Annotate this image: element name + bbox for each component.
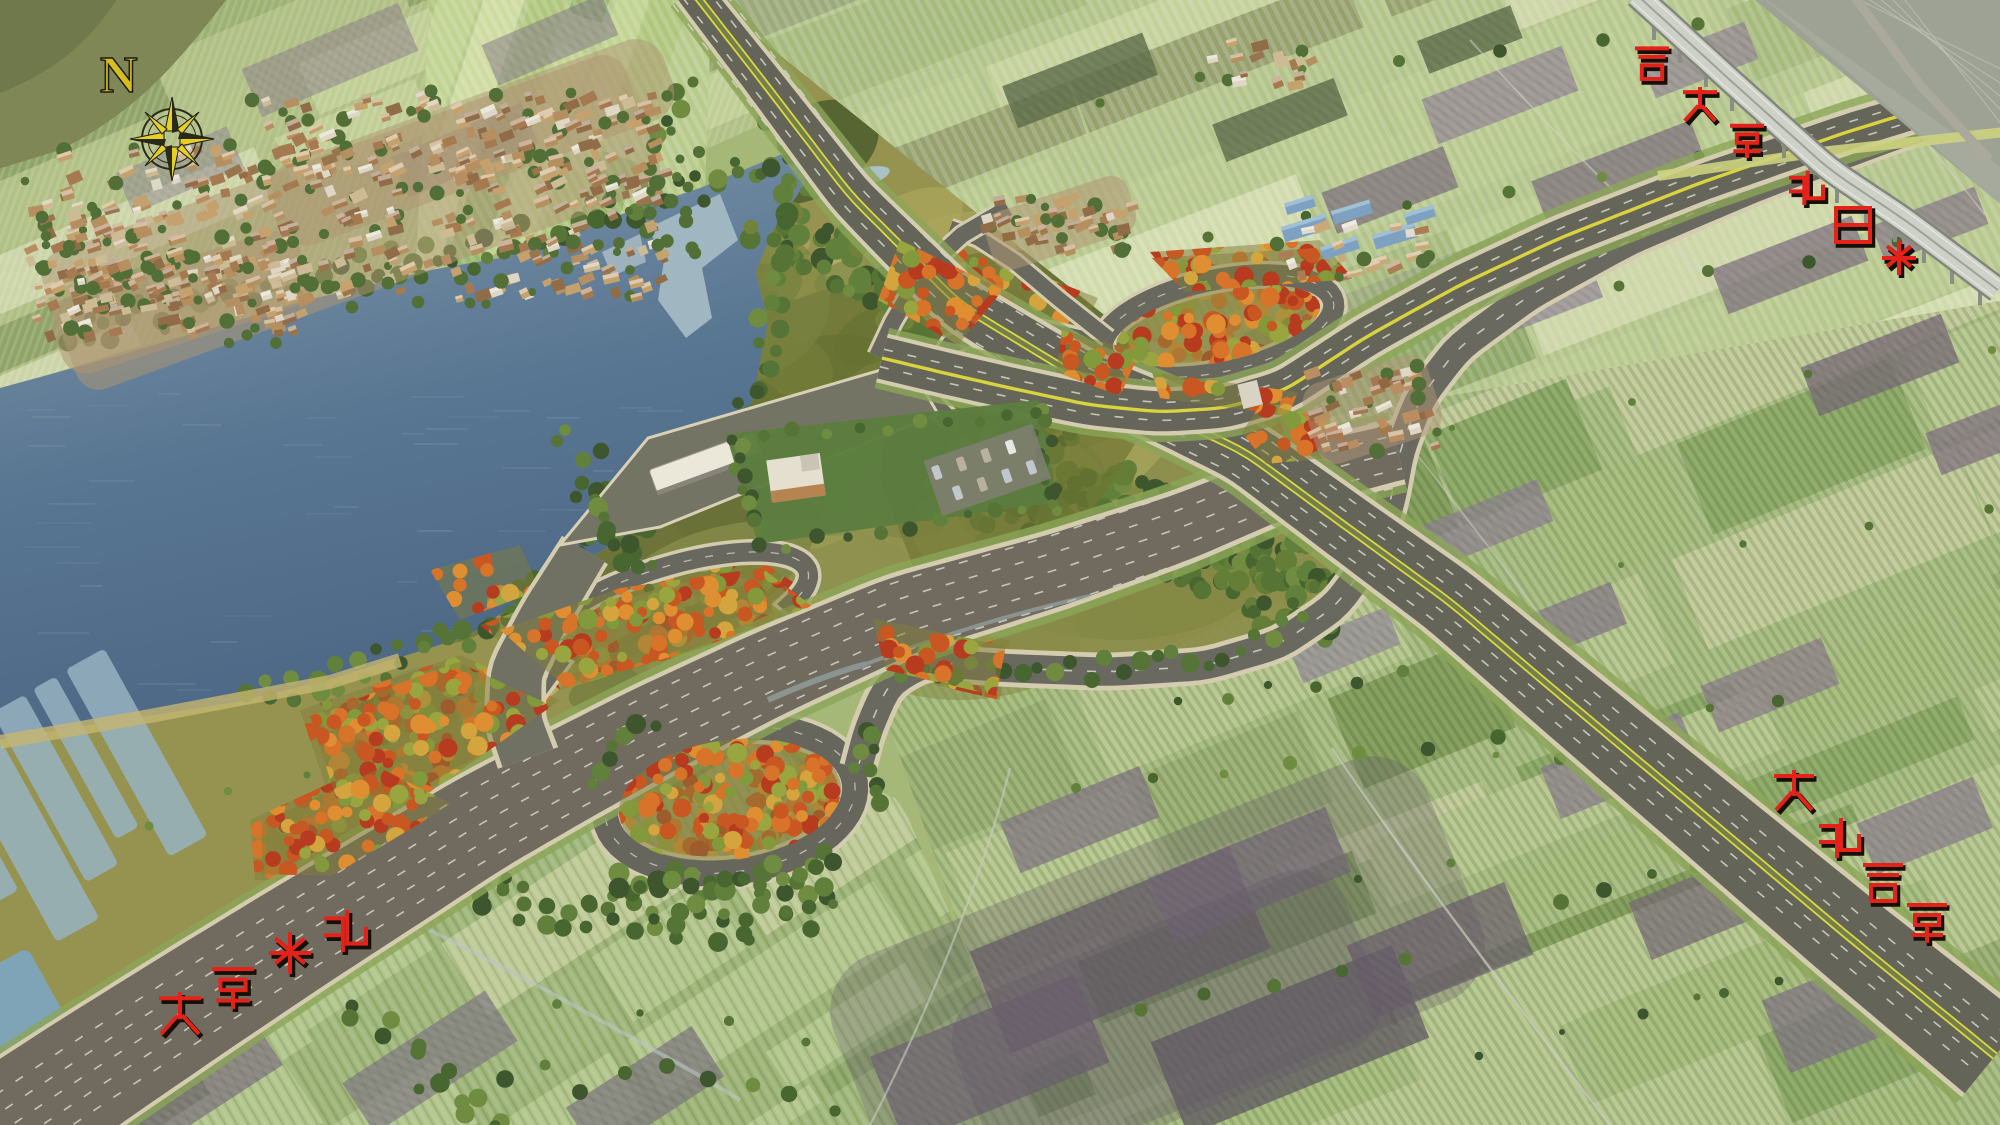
svg-text:N: N — [100, 47, 138, 104]
